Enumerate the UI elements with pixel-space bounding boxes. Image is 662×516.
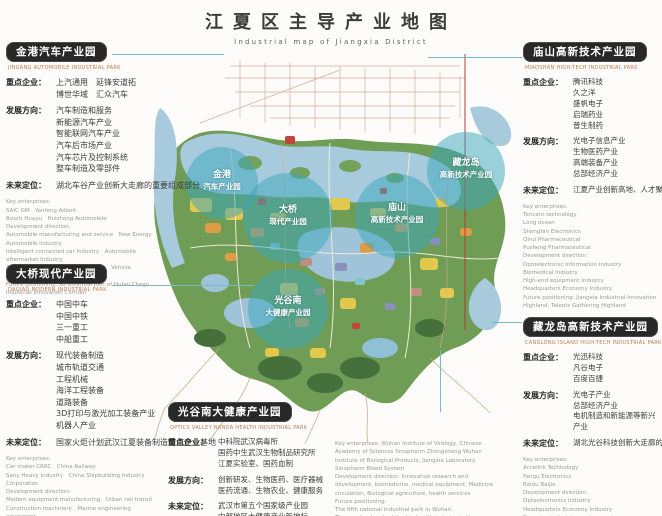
page-title: 江夏区主导产业地图 Industrial map of Jiangxia Dis… xyxy=(178,8,484,48)
panel-miaoshan-title-badge: 庙山高新技术产业园 xyxy=(523,42,647,62)
street-grid-layer xyxy=(200,60,465,134)
key-enterprises-label: 重点企业： xyxy=(523,77,573,131)
development-direction-label: 发展方向： xyxy=(6,350,56,431)
panel-guanggunan-subtitle: OPTICS VALLEY NANDA HEALTH INDUSTRIAL PA… xyxy=(170,425,330,431)
key-enterprises-list: 中国中车 中国中铁 三一重工 中船重工 xyxy=(56,299,88,345)
panel-guanggunan: 光谷南大健康产业园 OPTICS VALLEY NANDA HEALTH IND… xyxy=(168,400,330,516)
key-enterprises-label: 重点企业： xyxy=(523,352,573,385)
panel-canglongdao-subtitle: CANGLONG ISLAND HIGH-TECH INDUSTRIAL PAR… xyxy=(525,340,659,346)
panel-guanggunan-english-notes: Key enterprises: Wuhan Institute of Viro… xyxy=(335,440,495,516)
panel-jingang: 金港汽车产业园 JINGANG AUTOMOBILE INDUSTRIAL PA… xyxy=(6,40,158,297)
key-enterprises-list: 光迅科技 凡谷电子 百度百捷 xyxy=(573,352,603,385)
development-direction-label: 发展方向： xyxy=(523,390,573,434)
future-positioning-text: 湖北车谷产业创新大走廊的重要组成部分 xyxy=(56,180,200,192)
development-direction-list: 汽车制造和服务 新能源汽车产业 智能联网汽车产业 汽车后市场产业 汽车芯片及控制… xyxy=(56,105,128,175)
panel-miaoshan-english-notes: Key enterprises: Tencent technology Long… xyxy=(523,203,659,310)
panel-canglongdao-title-badge: 藏龙岛高新技术产业园 xyxy=(523,317,658,337)
panel-daqiao-title-badge: 大桥现代产业园 xyxy=(6,264,107,284)
panel-daqiao-english-notes: Key enterprises: Car maker CRRC China Ra… xyxy=(6,455,158,516)
connector-guanggunan xyxy=(440,350,441,412)
development-direction-label: 发展方向： xyxy=(168,475,218,497)
panel-jingang-title-badge: 金港汽车产业园 xyxy=(6,42,107,62)
panel-canglongdao: 藏龙岛高新技术产业园 CANGLONG ISLAND HIGH-TECH IND… xyxy=(523,315,659,516)
future-positioning-text: 湖北光谷科技创新大走廊的重要组成部分 xyxy=(573,438,662,449)
panel-miaoshan: 庙山高新技术产业园 MIAOSHAN HIGH-TECH INDUSTRIAL … xyxy=(523,40,659,310)
page-title-en: Industrial map of Jiangxia District xyxy=(178,37,484,48)
future-positioning-text: 武汉市第五个国家级产业园 中部地区大健康产业新地标 xyxy=(218,501,308,516)
key-enterprises-list: 上汽通用 延锋安道拓 博世华域 汇众汽车 xyxy=(56,77,136,100)
key-enterprises-label: 重点企业： xyxy=(6,299,56,345)
industrial-map-page: 江夏区主导产业地图 Industrial map of Jiangxia Dis… xyxy=(0,0,662,516)
page-title-zh: 江夏区主导产业地图 xyxy=(178,8,484,34)
map-label-canglongdao: 藏龙岛 高新技术产业园 xyxy=(416,158,516,179)
development-direction-label: 发展方向： xyxy=(523,136,573,180)
panel-guanggunan-title-badge: 光谷南大健康产业园 xyxy=(168,402,292,422)
panel-canglongdao-english-notes: Key enterprises: Accelink Technology Fan… xyxy=(523,456,659,516)
future-positioning-label: 未来定位： xyxy=(6,437,56,449)
key-enterprises-label: 重点企业： xyxy=(6,77,56,100)
development-direction-list: 创新研发、生物医药、医疗器械 医药流通、生物农业、健康服务 xyxy=(218,475,323,497)
development-direction-list: 现代装备制造 城市轨道交通 工程机械 海洋工程装备 道路装备 3D打印与激光加工… xyxy=(56,350,155,431)
future-positioning-label: 未来定位： xyxy=(523,185,573,196)
panel-daqiao: 大桥现代产业园 DAQIAO MODERN INDUSTRIAL PARK 重点… xyxy=(6,262,158,516)
map-label-miaoshan: 庙山 高新技术产业园 xyxy=(347,203,447,224)
map-label-daqiao: 大桥 现代产业园 xyxy=(243,205,333,226)
future-positioning-label: 未来定位： xyxy=(6,180,56,192)
panel-miaoshan-subtitle: MIAOSHAN HIGH-TECH INDUSTRIAL PARK xyxy=(525,65,659,71)
development-direction-list: 光电子产业 总部经济产业 电机制造和新能源等新兴产业 xyxy=(573,390,659,434)
connector-miaoshan xyxy=(428,57,522,58)
map-label-guanggunan: 光谷南 大健康产业园 xyxy=(238,296,338,317)
development-direction-list: 光电子信息产业 生物医药产业 高端装备产业 总部经济产业 xyxy=(573,136,626,180)
future-positioning-label: 未来定位： xyxy=(523,438,573,449)
development-direction-label: 发展方向： xyxy=(6,105,56,175)
connector-canglongdao xyxy=(492,322,522,323)
panel-daqiao-subtitle: DAQIAO MODERN INDUSTRIAL PARK xyxy=(8,287,158,293)
district-map xyxy=(130,48,515,448)
key-enterprises-list: 中科院武汉病毒所 国药中生武汉生物制品研究所 江夏实验室、国药血制 xyxy=(218,437,316,470)
panel-jingang-subtitle: JINGANG AUTOMOBILE INDUSTRIAL PARK xyxy=(8,65,158,71)
key-enterprises-list: 腾讯科技 久之洋 盛帆电子 启瑞药业 普生制药 xyxy=(573,77,603,131)
future-positioning-label: 未来定位： xyxy=(168,501,218,516)
future-positioning-text: 江夏产业创新高地、人才聚集高地 xyxy=(573,185,662,196)
key-enterprises-label: 重点企业： xyxy=(168,437,218,470)
